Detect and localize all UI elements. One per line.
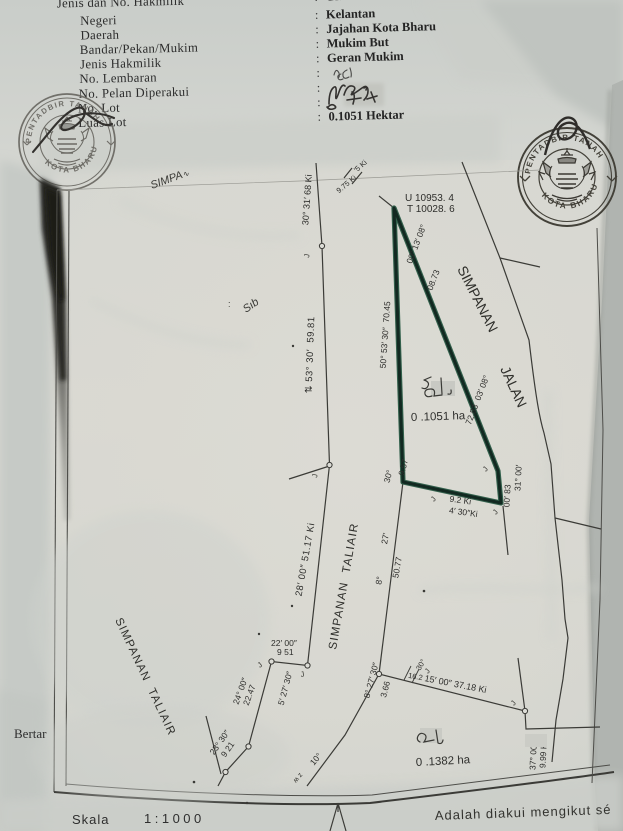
svg-text:1:1000: 1:1000 xyxy=(144,811,205,826)
svg-text:Jajahan Kota Bharu: Jajahan Kota Bharu xyxy=(326,19,436,36)
svg-text::: : xyxy=(315,37,319,51)
svg-text::: : xyxy=(315,22,319,36)
svg-text:9 51: 9 51 xyxy=(277,647,294,657)
svg-text:Kelantan: Kelantan xyxy=(326,6,376,21)
svg-text:No. Pelan Diperakui: No. Pelan Diperakui xyxy=(79,85,190,101)
svg-text:Jenis Hakmilik: Jenis Hakmilik xyxy=(80,56,162,72)
svg-text:Negeri: Negeri xyxy=(80,13,117,28)
svg-text:0.1051 Hektar: 0.1051 Hektar xyxy=(328,108,404,124)
svg-text:0 .1051 ha: 0 .1051 ha xyxy=(411,410,466,424)
svg-text::: : xyxy=(316,66,320,80)
svg-text::: : xyxy=(315,8,319,22)
svg-text::: : xyxy=(317,110,321,124)
svg-text:27′: 27′ xyxy=(379,532,391,545)
svg-text:8°: 8° xyxy=(373,576,384,586)
svg-text:No. Lembaran: No. Lembaran xyxy=(79,70,157,86)
svg-text::: : xyxy=(228,299,231,309)
svg-text::: : xyxy=(317,81,321,95)
svg-text:Geran Mukim: Geran Mukim xyxy=(327,49,405,65)
svg-text:Bandar/Pekan/Mukim: Bandar/Pekan/Mukim xyxy=(80,41,199,57)
svg-text:Bertar: Bertar xyxy=(14,726,47,741)
svg-text:00′ 83: 00′ 83 xyxy=(501,484,512,508)
svg-text:31° 00′: 31° 00′ xyxy=(512,464,523,491)
svg-text:Daerah: Daerah xyxy=(80,28,119,43)
svg-text::: : xyxy=(317,95,321,109)
svg-text:Mukim But: Mukim But xyxy=(326,35,389,51)
svg-text:T 10028. 6: T 10028. 6 xyxy=(407,204,455,215)
svg-text:U 10953. 4: U 10953. 4 xyxy=(405,193,454,204)
svg-text:Skala: Skala xyxy=(72,812,110,827)
svg-text::: : xyxy=(314,0,318,4)
svg-text::: : xyxy=(316,51,320,65)
